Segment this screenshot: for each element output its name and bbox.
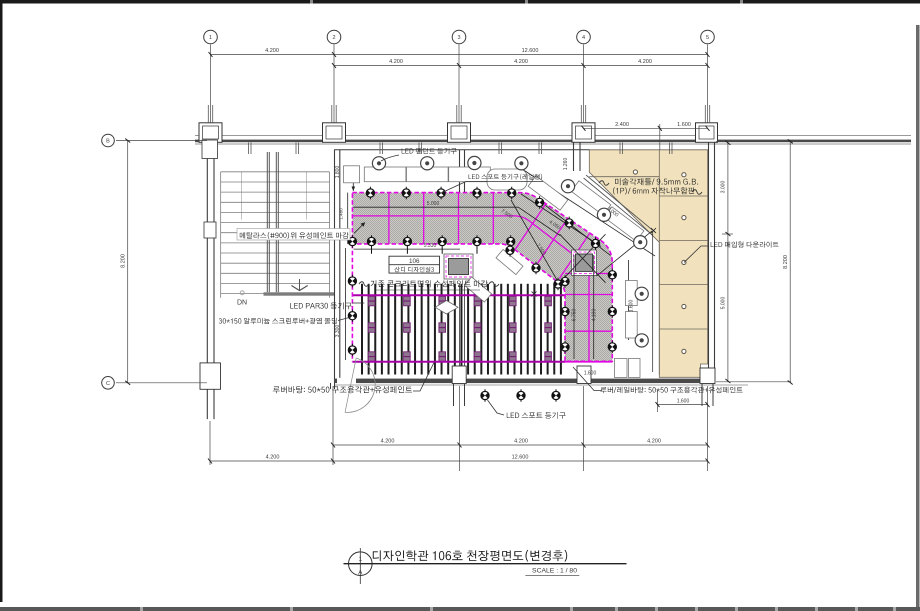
svg-text:1.260: 1.260 xyxy=(563,158,569,171)
svg-text:5: 5 xyxy=(706,35,709,41)
svg-text:4.200: 4.200 xyxy=(647,439,661,445)
svg-text:12.600: 12.600 xyxy=(512,455,529,461)
svg-text:DN: DN xyxy=(237,300,247,307)
svg-text:1.800: 1.800 xyxy=(335,166,341,179)
svg-text:1.600: 1.600 xyxy=(629,300,635,313)
svg-text:4.200: 4.200 xyxy=(514,439,528,445)
svg-text:106: 106 xyxy=(409,258,420,265)
svg-text:3: 3 xyxy=(457,35,460,41)
svg-text:1.600: 1.600 xyxy=(677,399,690,405)
svg-text:4.200: 4.200 xyxy=(638,59,652,65)
svg-text:6.750: 6.750 xyxy=(572,309,578,322)
svg-text:SCALE : 1 / 80: SCALE : 1 / 80 xyxy=(532,568,577,575)
svg-text:12.600: 12.600 xyxy=(522,48,539,54)
svg-text:4.200: 4.200 xyxy=(266,455,280,461)
svg-text:3.300: 3.300 xyxy=(335,325,341,338)
svg-text:2.400: 2.400 xyxy=(615,122,629,128)
svg-text:1.480: 1.480 xyxy=(339,208,344,220)
svg-text:B: B xyxy=(106,139,110,145)
svg-text:C: C xyxy=(106,381,110,387)
svg-text:4.200: 4.200 xyxy=(381,439,395,445)
svg-text:4: 4 xyxy=(582,35,585,41)
svg-text:1.600: 1.600 xyxy=(677,122,691,128)
svg-text:5.000: 5.000 xyxy=(427,201,440,207)
svg-text:1: 1 xyxy=(209,35,212,41)
svg-text:4.200: 4.200 xyxy=(265,48,279,54)
svg-text:2: 2 xyxy=(332,35,335,41)
svg-text:4.200: 4.200 xyxy=(389,59,403,65)
svg-text:3.000: 3.000 xyxy=(721,181,727,194)
svg-text:4.200: 4.200 xyxy=(514,59,528,65)
svg-text:8.200: 8.200 xyxy=(783,255,789,269)
svg-text:A: A xyxy=(358,570,363,577)
svg-text:8.200: 8.200 xyxy=(121,254,127,268)
svg-text:4.190: 4.190 xyxy=(592,309,598,322)
svg-text:1: 1 xyxy=(358,556,362,563)
svg-text:1.600: 1.600 xyxy=(584,371,597,377)
svg-text:5.000: 5.000 xyxy=(721,297,727,310)
svg-text:5.330: 5.330 xyxy=(424,243,437,249)
